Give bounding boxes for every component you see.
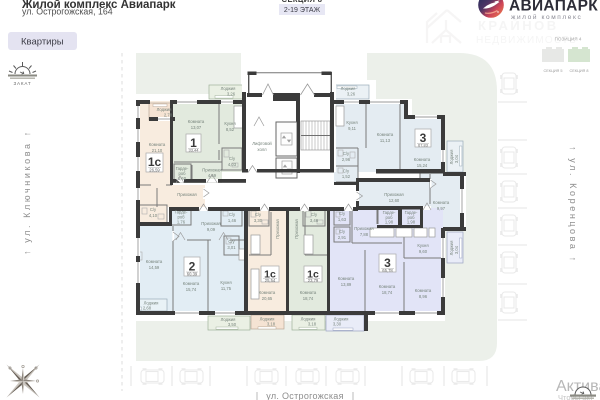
- svg-text:3,30: 3,30: [254, 218, 263, 223]
- svg-text:25,54: 25,54: [265, 278, 276, 283]
- svg-text:Комната: Комната: [188, 119, 205, 124]
- svg-text:18,74: 18,74: [303, 296, 314, 301]
- svg-text:С/у: С/у: [229, 156, 236, 161]
- svg-text:Комната: Комната: [433, 200, 450, 205]
- svg-text:Кухня: Кухня: [224, 121, 235, 126]
- svg-text:↑ ул. Ключникова ↑: ↑ ул. Ключникова ↑: [22, 129, 32, 255]
- svg-text:С/у: С/у: [228, 239, 235, 244]
- svg-text:Комната: Комната: [149, 142, 166, 147]
- svg-text:Кухня: Кухня: [220, 280, 231, 285]
- svg-text:1,60: 1,60: [178, 176, 187, 181]
- svg-text:9,11: 9,11: [348, 126, 357, 131]
- svg-text:3,04: 3,04: [454, 245, 459, 254]
- svg-text:Комната: Комната: [338, 276, 355, 281]
- svg-text:Комната: Комната: [415, 288, 432, 293]
- svg-text:Комната: Комната: [146, 259, 163, 264]
- svg-text:65,78: 65,78: [382, 268, 393, 273]
- svg-text:12,60: 12,60: [389, 198, 400, 203]
- svg-text:23,79: 23,79: [308, 278, 319, 283]
- svg-text:1,98: 1,98: [407, 220, 416, 225]
- svg-text:ПОЗИЦИЯ 4: ПОЗИЦИЯ 4: [555, 37, 582, 42]
- svg-text:Комната: Комната: [377, 132, 394, 137]
- svg-text:С/у: С/у: [339, 211, 346, 216]
- svg-text:2,68: 2,68: [143, 306, 152, 311]
- svg-text:Лифтовой: Лифтовой: [252, 141, 272, 146]
- svg-text:Прихожая: Прихожая: [177, 192, 196, 197]
- svg-text:Комната: Комната: [379, 284, 396, 289]
- svg-text:3,01: 3,01: [227, 245, 236, 250]
- svg-text:С/у: С/у: [343, 169, 350, 174]
- svg-text:11,75: 11,75: [221, 286, 232, 291]
- svg-text:Комната: Комната: [259, 290, 276, 295]
- svg-text:АВИАПАРК: АВИАПАРК: [509, 0, 598, 15]
- svg-text:Прихожая: Прихожая: [384, 192, 403, 197]
- svg-text:3,04: 3,04: [454, 154, 459, 163]
- svg-text:8,52: 8,52: [226, 127, 235, 132]
- svg-text:20,65: 20,65: [262, 296, 273, 301]
- svg-text:С/у: С/у: [150, 207, 157, 212]
- svg-text:11,13: 11,13: [380, 138, 391, 143]
- svg-text:Кухня: Кухня: [346, 120, 357, 125]
- svg-text:С/у: С/у: [311, 212, 318, 217]
- svg-text:С/у: С/у: [339, 229, 346, 234]
- svg-text:9,60: 9,60: [419, 249, 428, 254]
- svg-text:2,96: 2,96: [342, 157, 351, 162]
- svg-text:Прихожая: Прихожая: [202, 168, 221, 173]
- svg-text:60,39: 60,39: [187, 272, 198, 277]
- svg-text:Комната: Комната: [414, 157, 431, 162]
- svg-text:1,98: 1,98: [385, 220, 394, 225]
- svg-text:3,18: 3,18: [267, 322, 276, 327]
- svg-text:4,03: 4,03: [228, 162, 237, 167]
- svg-text:ул. Острогожская: ул. Острогожская: [266, 391, 344, 400]
- svg-text:3,18: 3,18: [308, 322, 317, 327]
- svg-text:СЕКЦИЯ 5: СЕКЦИЯ 5: [544, 69, 563, 73]
- svg-text:3,26: 3,26: [347, 92, 356, 97]
- svg-text:Прихожая: Прихожая: [294, 219, 299, 238]
- svg-text:26,59: 26,59: [149, 168, 160, 173]
- svg-text:ул. Острогожская, 164: ул. Острогожская, 164: [22, 7, 113, 17]
- svg-text:33,44: 33,44: [188, 148, 199, 153]
- svg-text:1,63: 1,63: [338, 217, 347, 222]
- svg-text:4,10: 4,10: [149, 213, 158, 218]
- svg-text:7,88: 7,88: [360, 232, 369, 237]
- svg-text:8,96: 8,96: [419, 294, 428, 299]
- svg-text:2-19 ЭТАЖ: 2-19 ЭТАЖ: [284, 7, 321, 14]
- svg-text:3,26: 3,26: [227, 92, 236, 97]
- svg-text:2,91: 2,91: [338, 235, 347, 240]
- svg-text:1,52: 1,52: [342, 174, 351, 179]
- svg-text:холл: холл: [257, 147, 267, 152]
- svg-text:67,83: 67,83: [418, 143, 429, 148]
- svg-text:С/у: С/у: [229, 212, 236, 217]
- svg-text:3,46: 3,46: [310, 218, 319, 223]
- svg-text:13,89: 13,89: [341, 282, 352, 287]
- svg-text:1,46: 1,46: [228, 218, 237, 223]
- svg-text:Кухня: Кухня: [417, 243, 428, 248]
- svg-text:14,59: 14,59: [149, 265, 160, 270]
- svg-text:3,50: 3,50: [228, 322, 237, 327]
- svg-text:3,30: 3,30: [333, 322, 342, 327]
- svg-text:Лоджия: Лоджия: [341, 86, 356, 91]
- svg-text:СЕКЦИЯ 8: СЕКЦИЯ 8: [282, 0, 323, 4]
- svg-text:С/у: С/у: [343, 151, 350, 156]
- svg-text:1,76: 1,76: [177, 220, 186, 225]
- svg-text:Прихожая: Прихожая: [275, 219, 280, 238]
- svg-text:9,97: 9,97: [437, 206, 446, 211]
- svg-text:21,10: 21,10: [152, 148, 163, 153]
- svg-text:15,74: 15,74: [186, 287, 197, 292]
- svg-text:18,74: 18,74: [382, 290, 393, 295]
- svg-text:15,24: 15,24: [417, 163, 428, 168]
- svg-text:4,59: 4,59: [208, 173, 217, 178]
- svg-text:Прихожая: Прихожая: [201, 221, 220, 226]
- svg-text:С/у: С/у: [255, 212, 262, 217]
- svg-text:9,09: 9,09: [207, 227, 216, 232]
- svg-text:Лоджия: Лоджия: [157, 107, 172, 112]
- svg-text:Квартиры: Квартиры: [21, 37, 64, 48]
- svg-text:↑ ул. Коренцова ↑: ↑ ул. Коренцова ↑: [568, 146, 578, 264]
- svg-text:Комната: Комната: [183, 281, 200, 286]
- svg-text:ЗАКАТ: ЗАКАТ: [13, 81, 31, 86]
- svg-text:Лоджия: Лоджия: [221, 86, 236, 91]
- svg-text:Комната: Комната: [300, 290, 317, 295]
- svg-text:Прихожая: Прихожая: [354, 226, 373, 231]
- svg-text:жилой комплекс: жилой комплекс: [511, 13, 582, 21]
- svg-text:СЕКЦИЯ 8: СЕКЦИЯ 8: [570, 69, 589, 73]
- svg-text:13,07: 13,07: [191, 125, 202, 130]
- svg-text:2,78: 2,78: [164, 113, 173, 118]
